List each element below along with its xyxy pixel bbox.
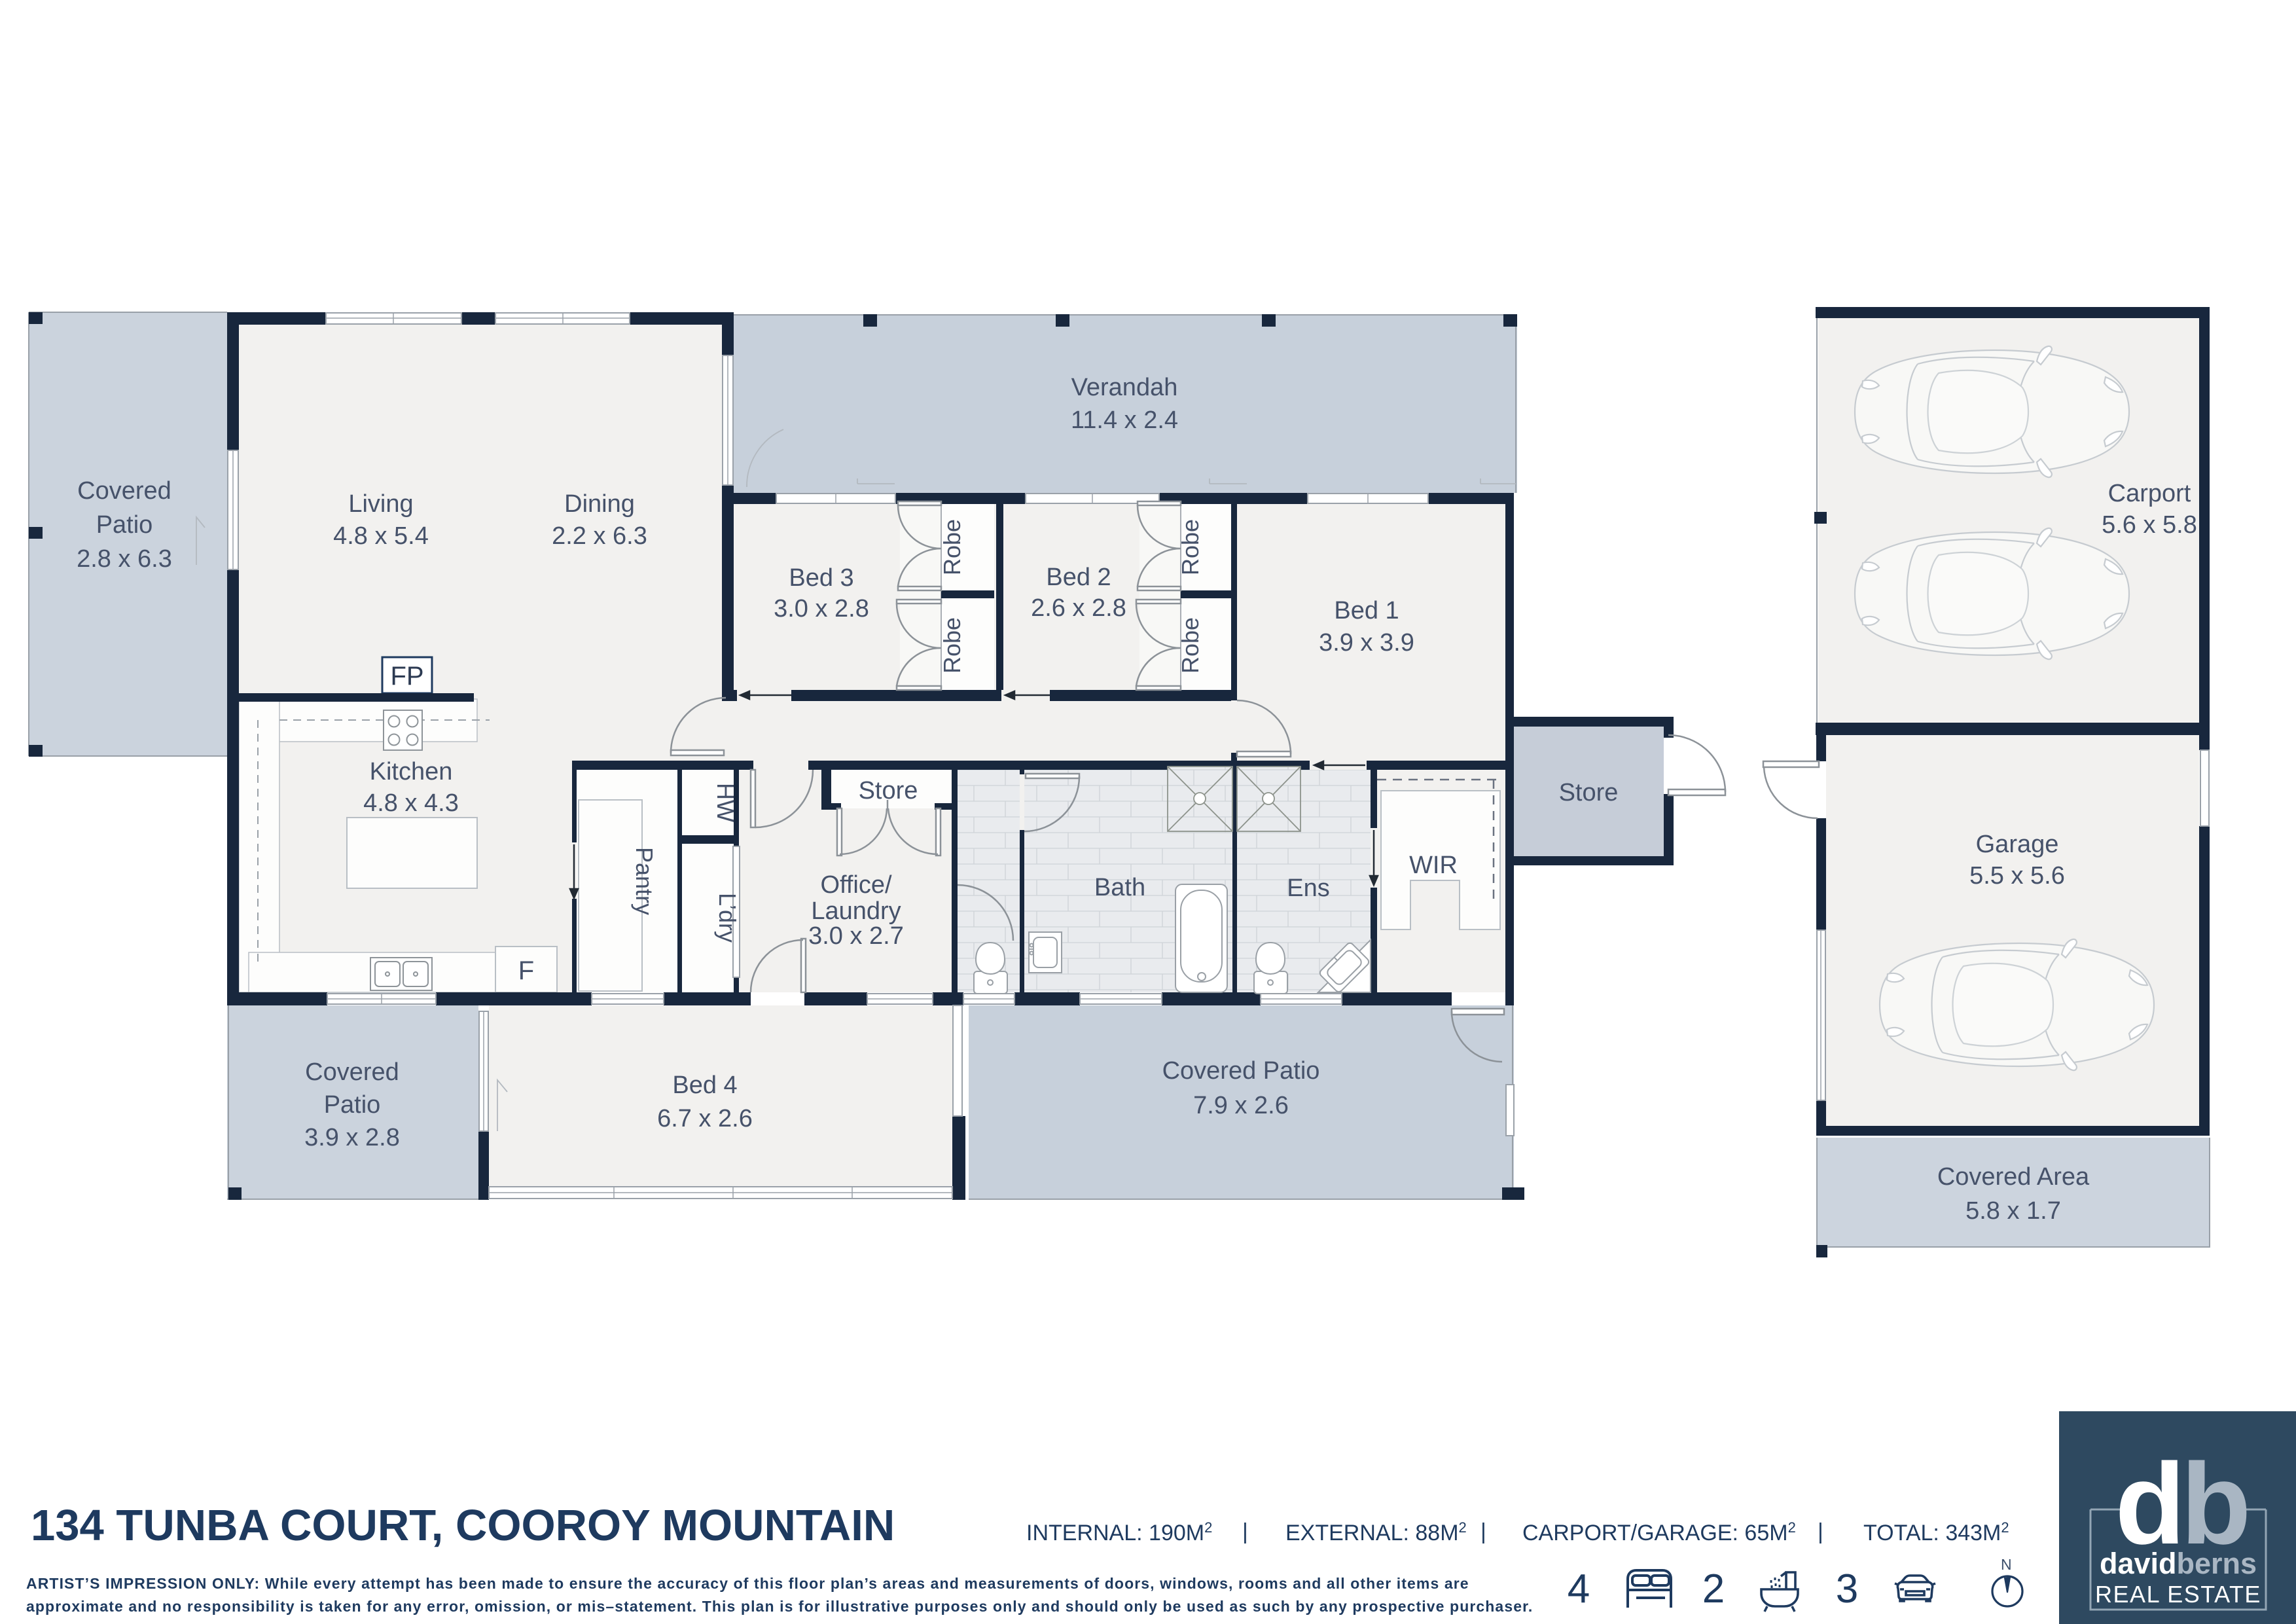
svg-text:Pantry: Pantry bbox=[631, 847, 658, 915]
svg-text:Carport: Carport bbox=[2108, 480, 2191, 507]
svg-text:F: F bbox=[518, 956, 534, 985]
svg-text:REAL ESTATE: REAL ESTATE bbox=[2095, 1581, 2261, 1608]
svg-text:Laundry: Laundry bbox=[811, 897, 901, 925]
svg-text:CARPORT/GARAGE: 65M2: CARPORT/GARAGE: 65M2 bbox=[1522, 1519, 1796, 1545]
svg-text:FP: FP bbox=[390, 662, 423, 691]
svg-text:N: N bbox=[2001, 1556, 2012, 1573]
svg-text:Dining: Dining bbox=[564, 490, 635, 518]
svg-text:approximate and no responsibil: approximate and no responsibility is tak… bbox=[26, 1598, 1533, 1615]
svg-text:3.9 x 3.9: 3.9 x 3.9 bbox=[1319, 629, 1414, 657]
svg-text:WIR: WIR bbox=[1409, 852, 1458, 879]
svg-text:Store: Store bbox=[1559, 779, 1619, 806]
svg-text:11.4 x 2.4: 11.4 x 2.4 bbox=[1071, 406, 1178, 434]
svg-text:6.7 x 2.6: 6.7 x 2.6 bbox=[657, 1105, 753, 1132]
svg-text:4.8 x 4.3: 4.8 x 4.3 bbox=[363, 789, 459, 817]
svg-text:3: 3 bbox=[1836, 1566, 1858, 1612]
svg-text:Garage: Garage bbox=[1976, 831, 2059, 858]
svg-text:Office/: Office/ bbox=[820, 871, 892, 899]
svg-text:5.5 x 5.6: 5.5 x 5.6 bbox=[1969, 862, 2065, 890]
svg-text:Covered Area: Covered Area bbox=[1937, 1163, 2090, 1191]
svg-text:2.2 x 6.3: 2.2 x 6.3 bbox=[552, 522, 647, 550]
svg-text:ARTIST’S IMPRESSION ONLY: Whil: ARTIST’S IMPRESSION ONLY: While every at… bbox=[26, 1575, 1469, 1592]
svg-text:Living: Living bbox=[348, 490, 413, 518]
svg-text:EXTERNAL: 88M2: EXTERNAL: 88M2 bbox=[1285, 1519, 1467, 1545]
svg-text:4.8 x 5.4: 4.8 x 5.4 bbox=[333, 522, 429, 550]
svg-text:Robe: Robe bbox=[939, 519, 965, 575]
svg-text:Patio: Patio bbox=[324, 1091, 381, 1119]
svg-text:3.0 x 2.8: 3.0 x 2.8 bbox=[774, 595, 869, 623]
svg-text:Kitchen: Kitchen bbox=[370, 758, 453, 785]
svg-text:Patio: Patio bbox=[96, 511, 153, 539]
svg-text:Covered: Covered bbox=[305, 1058, 399, 1086]
svg-text:Bath: Bath bbox=[1094, 874, 1145, 901]
svg-text:Robe: Robe bbox=[939, 617, 965, 674]
svg-text:TOTAL: 343M2: TOTAL: 343M2 bbox=[1863, 1519, 2009, 1545]
svg-text:Covered: Covered bbox=[77, 477, 171, 505]
svg-text:|: | bbox=[1480, 1519, 1486, 1544]
svg-text:Store: Store bbox=[859, 777, 918, 804]
svg-text:Robe: Robe bbox=[1177, 519, 1204, 575]
svg-text:2: 2 bbox=[1702, 1566, 1725, 1612]
svg-text:4: 4 bbox=[1568, 1566, 1590, 1612]
svg-text:Covered Patio: Covered Patio bbox=[1162, 1057, 1320, 1085]
svg-text:Bed 2: Bed 2 bbox=[1046, 564, 1111, 591]
svg-text:Bed 4: Bed 4 bbox=[672, 1072, 737, 1099]
svg-text:134 TUNBA COURT, COOROY MOUNTA: 134 TUNBA COURT, COOROY MOUNTAIN bbox=[31, 1501, 895, 1550]
svg-text:Ens: Ens bbox=[1287, 875, 1329, 902]
svg-text:|: | bbox=[1818, 1519, 1823, 1544]
svg-text:Bed 1: Bed 1 bbox=[1334, 597, 1399, 624]
svg-text:3.0 x 2.7: 3.0 x 2.7 bbox=[808, 922, 904, 950]
svg-text:2.8 x 6.3: 2.8 x 6.3 bbox=[77, 545, 172, 573]
svg-text:7.9 x 2.6: 7.9 x 2.6 bbox=[1193, 1092, 1289, 1119]
svg-text:3.9 x 2.8: 3.9 x 2.8 bbox=[304, 1124, 400, 1151]
svg-text:INTERNAL: 190M2: INTERNAL: 190M2 bbox=[1026, 1519, 1212, 1545]
svg-text:davidberns: davidberns bbox=[2100, 1547, 2257, 1580]
svg-text:HW: HW bbox=[712, 783, 739, 822]
svg-text:Verandah: Verandah bbox=[1071, 374, 1178, 401]
svg-text:5.6 x 5.8: 5.6 x 5.8 bbox=[2102, 511, 2197, 539]
svg-text:5.8 x 1.7: 5.8 x 1.7 bbox=[1965, 1197, 2061, 1225]
svg-text:2.6 x 2.8: 2.6 x 2.8 bbox=[1031, 594, 1126, 622]
svg-text:Bed 3: Bed 3 bbox=[789, 564, 853, 592]
svg-text:L’dry: L’dry bbox=[714, 893, 741, 943]
svg-text:Robe: Robe bbox=[1177, 617, 1204, 674]
svg-text:|: | bbox=[1242, 1519, 1248, 1544]
